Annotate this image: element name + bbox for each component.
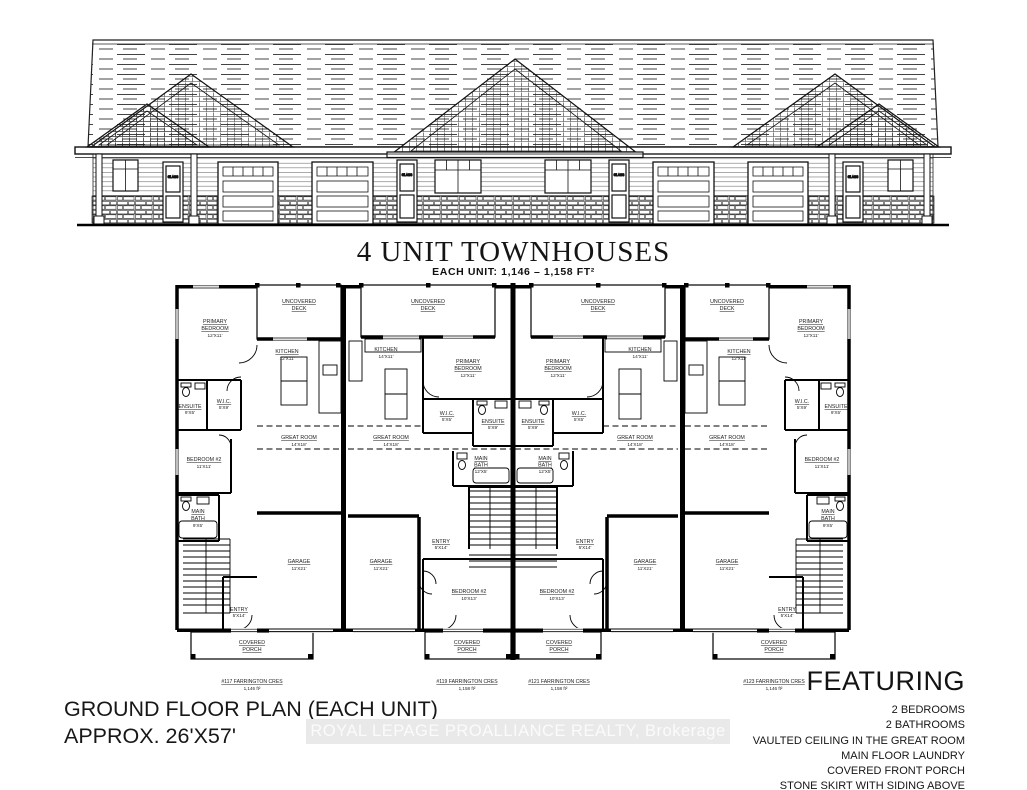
room-dim: 14'X11' [379,354,394,359]
room-label: DECK [591,306,606,312]
featuring-heading: FEATURING [605,666,965,697]
room-label: BEDROOM #2 [540,589,575,595]
room-label: GREAT ROOM [373,435,409,441]
room-label: PRIMARY [799,319,824,325]
room-label: DECK [720,306,735,312]
room-label: BEDROOM #2 [187,457,222,463]
unit-area: 1,158 ft² [551,686,568,691]
room-label: PORCH [764,647,783,653]
room-dim: 11'X21' [292,566,307,571]
room-label: GARAGE [370,559,393,565]
room-dim: 12'X11' [208,333,223,338]
room-dim: 5'X5' [574,417,584,422]
room-dim: 14'X18' [719,442,734,447]
room-label: PORCH [457,647,476,653]
room-dim: 5'X9' [528,425,538,430]
room-dim: 5'X14' [781,613,794,618]
room-dim: 5'X9' [219,405,229,410]
room-label: PRIMARY [546,359,571,365]
room-label: UNCOVERED [710,299,744,305]
room-label: BATH [821,516,835,522]
room-dim: 11'X21' [374,566,389,571]
room-dim: 12'X5' [475,469,488,474]
floor-plan: UNCOVERED DECK UNCOVERED DECK UNCOVERED … [173,281,853,695]
room-label: KITCHEN [374,347,397,353]
room-label: PRIMARY [203,319,228,325]
unit-area: 1,146 ft² [244,686,261,691]
room-label: MAIN [474,456,487,462]
featuring-item: 2 BEDROOMS [605,703,965,718]
room-label: UNCOVERED [581,299,615,305]
room-dim: 5'X9' [797,405,807,410]
featuring-item: 2 BATHROOMS [605,718,965,733]
door-glass-label: GLASS [848,175,859,179]
page-title: 4 UNIT TOWNHOUSES [0,236,1027,269]
room-dim: 9'X5' [823,523,833,528]
room-dim: 5'X9' [488,425,498,430]
page-subtitle: EACH UNIT: 1,146 – 1,158 FT² [0,266,1027,278]
room-dim: 12'X11' [732,356,747,361]
room-label: BATH [538,463,552,469]
room-dim: 5'X14' [233,613,246,618]
room-dim: 12'X11' [804,333,819,338]
room-label: GREAT ROOM [709,435,745,441]
room-label: GARAGE [634,559,657,565]
floor-plan-sheet: GLASS GLASS GLASS GLASS [0,0,1027,790]
room-label: UNCOVERED [411,299,445,305]
room-label: BEDROOM [454,366,481,372]
featuring-item: COVERED FRONT PORCH [605,764,965,779]
room-dim: 14'X18' [383,442,398,447]
room-dim: 9'X5' [193,523,203,528]
room-label: COVERED [454,640,480,646]
room-label: GREAT ROOM [617,435,653,441]
room-label: BEDROOM [797,326,824,332]
room-label: KITCHEN [727,349,750,355]
room-dim: 12'X11' [280,356,295,361]
room-label: COVERED [761,640,787,646]
room-dim: 11'X21' [638,566,653,571]
door-glass-label: GLASS [614,173,625,177]
room-dim: 14'X18' [291,442,306,447]
room-label: DECK [421,306,436,312]
room-dim: 5'X14' [435,545,448,550]
room-label: COVERED [546,640,572,646]
unit-address: #119 FARRINGTON CRES [436,679,498,685]
room-label: DECK [292,306,307,312]
featuring-section: FEATURING 2 BEDROOMS 2 BATHROOMS VAULTED… [605,666,965,790]
room-dim: 12'X5' [539,469,552,474]
room-dim: 14'X18' [627,442,642,447]
featuring-item: MAIN FLOOR LAUNDRY [605,749,965,764]
room-label: MAIN [191,509,204,515]
room-label: MAIN [821,509,834,515]
room-dim: 14'X11' [633,354,648,359]
room-dim: 12'X11' [461,373,476,378]
room-label: BEDROOM #2 [805,457,840,463]
featuring-item: VAULTED CEILING IN THE GREAT ROOM [605,734,965,749]
room-label: KITCHEN [628,347,651,353]
room-dim: 11'X11' [197,464,212,469]
room-dim: 10'X13' [461,596,476,601]
room-label: BEDROOM [544,366,571,372]
room-label: MAIN [538,456,551,462]
featuring-list: 2 BEDROOMS 2 BATHROOMS VAULTED CEILING I… [605,703,965,790]
room-dim: 9'X5' [831,410,841,415]
room-label: BEDROOM [201,326,228,332]
room-dim: 11'X21' [720,566,735,571]
unit-area: 1,158 ft² [459,686,476,691]
room-label: COVERED [239,640,265,646]
door-glass-label: GLASS [168,175,179,179]
building-elevation: GLASS GLASS GLASS GLASS [63,12,963,237]
room-label: BATH [474,463,488,469]
room-label: UNCOVERED [282,299,316,305]
room-label: GARAGE [288,559,311,565]
room-label: BEDROOM #2 [452,589,487,595]
unit-address: #117 FARRINGTON CRES [221,679,283,685]
featuring-item: STONE SKIRT WITH SIDING ABOVE [605,779,965,790]
room-label: BATH [191,516,205,522]
room-dim: 5'X5' [442,417,452,422]
room-dim: 11'X11' [815,464,830,469]
room-label: KITCHEN [275,349,298,355]
room-dim: 5'X14' [579,545,592,550]
room-dim: 10'X13' [549,596,564,601]
room-label: PORCH [242,647,261,653]
room-dim: 12'X11' [551,373,566,378]
room-label: GARAGE [716,559,739,565]
room-label: PRIMARY [456,359,481,365]
room-label: GREAT ROOM [281,435,317,441]
unit-address: #121 FARRINGTON CRES [528,679,590,685]
door-glass-label: GLASS [402,173,413,177]
room-dim: 9'X5' [185,410,195,415]
room-label: PORCH [549,647,568,653]
